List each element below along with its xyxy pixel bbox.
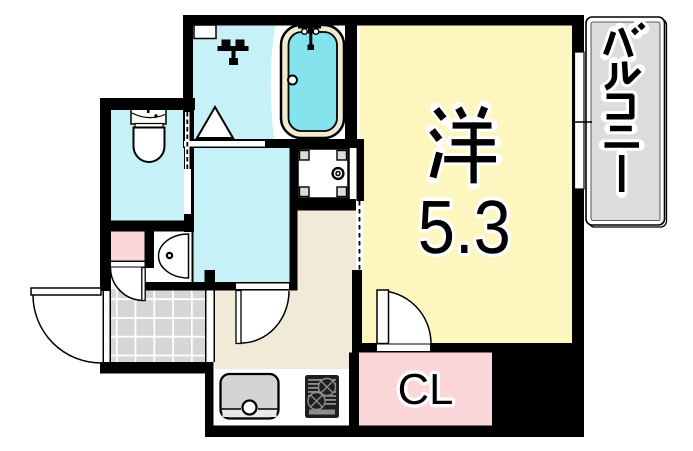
svg-text:CL: CL <box>398 366 454 414</box>
svg-text:5.3: 5.3 <box>418 185 511 269</box>
